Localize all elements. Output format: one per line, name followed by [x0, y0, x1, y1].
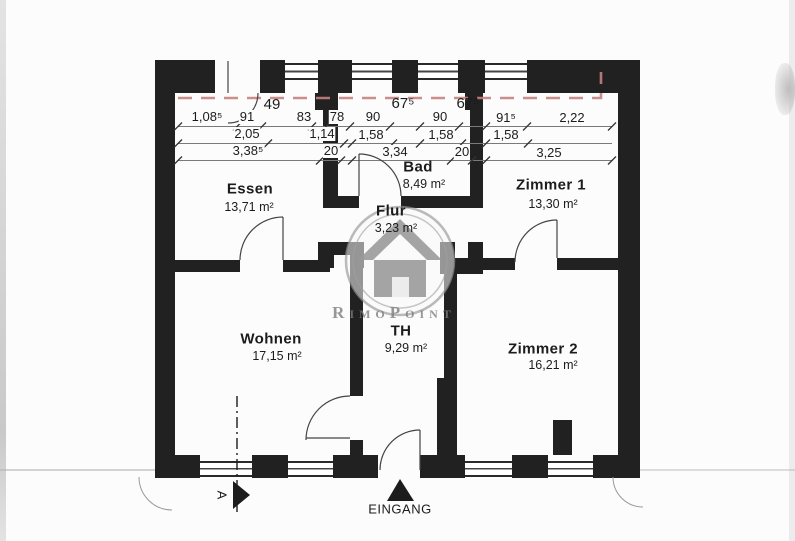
room-label-essen: Essen — [227, 181, 273, 198]
dim-r3-1: 20 — [323, 144, 339, 158]
dim-r3-0: 3,38⁵ — [232, 144, 265, 158]
dim-r1-7: 2,22 — [558, 111, 585, 125]
room-area-zimmer2: 16,21 m² — [528, 358, 577, 372]
entrance-label: EINGANG — [368, 502, 431, 517]
room-area-th: 9,29 m² — [385, 341, 427, 355]
room-area-essen: 13,71 m² — [224, 200, 273, 214]
room-area-wohnen: 17,15 m² — [252, 349, 301, 363]
dim-r3-4: 3,25 — [535, 146, 562, 160]
dim-r1-5: 90 — [432, 110, 448, 124]
room-label-zimmer1: Zimmer 1 — [516, 177, 586, 194]
room-label-th: TH — [391, 323, 412, 340]
dim-r1-6: 91⁵ — [495, 111, 517, 125]
dim-top-0: 49 — [263, 98, 282, 112]
room-area-bad: 8,49 m² — [403, 177, 445, 191]
room-label-bad: Bad — [403, 159, 433, 176]
dim-r1-4: 90 — [365, 110, 381, 124]
dim-top-2: 67⁵ — [456, 97, 481, 111]
room-label-zimmer2: Zimmer 2 — [508, 341, 578, 358]
dim-r1-1: 91 — [239, 110, 255, 124]
dim-r2-4: 1,58 — [492, 128, 519, 142]
watermark-text: RimoPoint — [332, 303, 456, 323]
dim-r2-3: 1,58 — [427, 128, 454, 142]
dim-r2-2: 1,58 — [357, 128, 384, 142]
watermark-logo — [0, 0, 795, 541]
room-label-flur: Flur — [376, 203, 406, 220]
dim-top-1: 67⁵ — [391, 97, 416, 111]
room-area-flur: 3,23 m² — [375, 221, 417, 235]
floorplan-page: RimoPoint 49 67⁵ 67⁵ 1,08⁵ 91 83 78 90 9… — [0, 0, 795, 541]
dim-r1-2: 83 — [296, 110, 312, 124]
dim-r3-2: 3,34 — [381, 145, 408, 159]
section-marker-label: A — [215, 491, 230, 500]
dim-r2-1: 1,14 — [308, 127, 335, 141]
room-label-wohnen: Wohnen — [240, 331, 301, 348]
room-area-zimmer1: 13,30 m² — [528, 197, 577, 211]
dim-r2-0: 2,05 — [233, 127, 260, 141]
dim-r1-3: 78 — [329, 110, 345, 124]
dim-r1-0: 1,08⁵ — [191, 110, 224, 124]
dim-r3-3: 20 — [454, 145, 470, 159]
